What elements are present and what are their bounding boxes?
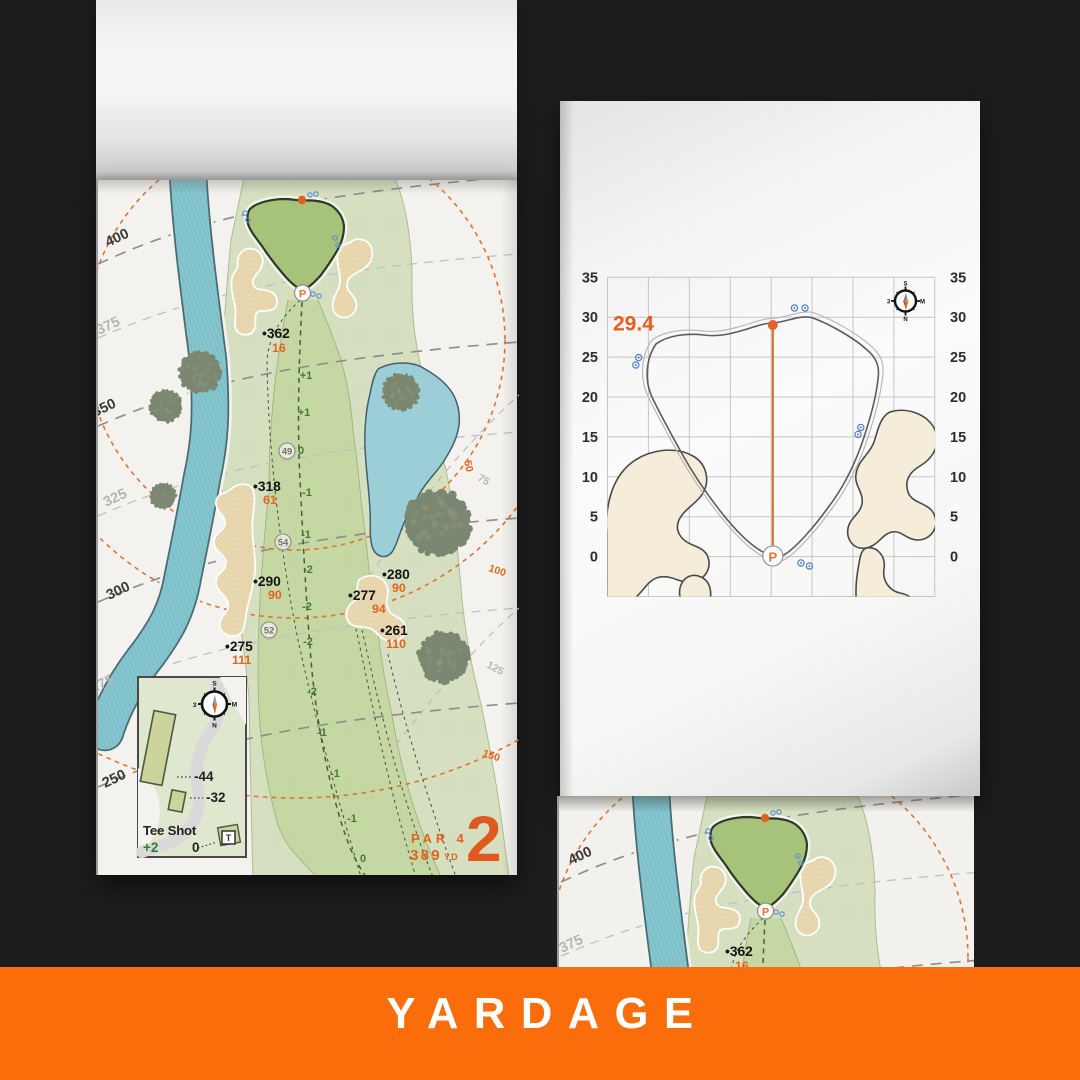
svg-text:110: 110 — [386, 637, 406, 651]
svg-text:30: 30 — [950, 310, 966, 326]
svg-text:325: 325 — [101, 486, 130, 511]
svg-text:-32: -32 — [206, 790, 226, 805]
svg-text:25: 25 — [582, 350, 598, 366]
svg-text:S: S — [903, 282, 907, 288]
svg-text:94: 94 — [372, 602, 386, 616]
svg-text:29.4: 29.4 — [613, 313, 654, 336]
svg-text:20: 20 — [582, 390, 598, 406]
svg-text:-2: -2 — [307, 686, 317, 698]
svg-text:N: N — [903, 317, 907, 323]
svg-text:+1: +1 — [300, 370, 313, 382]
svg-text:10: 10 — [950, 470, 966, 486]
svg-text:2: 2 — [466, 803, 502, 875]
svg-text:-2: -2 — [303, 636, 313, 648]
svg-text:-1: -1 — [347, 813, 357, 825]
svg-text:•290: •290 — [253, 574, 281, 589]
svg-text:35: 35 — [950, 270, 966, 286]
svg-text:PAR 4: PAR 4 — [411, 831, 468, 846]
svg-text:+1: +1 — [298, 407, 311, 419]
svg-text:T: T — [226, 833, 232, 843]
svg-text:111: 111 — [232, 653, 251, 667]
svg-text:15: 15 — [582, 430, 598, 446]
svg-text:54: 54 — [278, 538, 289, 549]
svg-text:•275: •275 — [225, 639, 253, 654]
svg-text:0: 0 — [298, 445, 304, 457]
svg-text:•362: •362 — [262, 326, 290, 341]
svg-text:5: 5 — [950, 510, 958, 526]
svg-text:•277: •277 — [348, 588, 376, 603]
svg-text:-1: -1 — [301, 529, 311, 541]
svg-text:30: 30 — [582, 310, 598, 326]
svg-text:15: 15 — [950, 430, 966, 446]
svg-text:M: M — [920, 300, 925, 306]
svg-text:M: M — [232, 702, 237, 709]
svg-text:0: 0 — [360, 853, 366, 865]
svg-text:-44: -44 — [194, 769, 214, 784]
svg-text:90: 90 — [392, 581, 406, 595]
svg-text:-2: -2 — [302, 601, 312, 613]
svg-text:0: 0 — [950, 550, 958, 566]
svg-text:•280: •280 — [382, 567, 410, 582]
svg-text:61: 61 — [263, 493, 277, 507]
svg-text:300: 300 — [104, 579, 133, 604]
svg-text:P: P — [768, 550, 777, 565]
svg-text:P: P — [299, 289, 306, 301]
svg-text:-1: -1 — [317, 727, 327, 739]
svg-text:400: 400 — [103, 226, 132, 251]
svg-text:3: 3 — [193, 702, 197, 709]
svg-text:20: 20 — [950, 390, 966, 406]
svg-text:-2: -2 — [303, 564, 313, 576]
svg-text:25: 25 — [950, 350, 966, 366]
svg-text:10: 10 — [582, 470, 598, 486]
svg-text:-1: -1 — [330, 768, 340, 780]
svg-text:+2: +2 — [143, 840, 158, 855]
svg-text:S: S — [212, 681, 217, 688]
svg-text:16: 16 — [272, 341, 286, 355]
svg-text:75: 75 — [476, 472, 492, 488]
svg-text:5: 5 — [590, 510, 598, 526]
svg-text:Tee Shot: Tee Shot — [143, 823, 197, 838]
svg-text:•318: •318 — [253, 479, 281, 494]
svg-text:50: 50 — [461, 459, 475, 473]
svg-text:350: 350 — [98, 396, 119, 421]
svg-text:35: 35 — [582, 270, 598, 286]
svg-text:49: 49 — [282, 447, 293, 458]
svg-text:•261: •261 — [380, 623, 408, 638]
svg-text:52: 52 — [264, 626, 275, 637]
svg-text:0: 0 — [590, 550, 598, 566]
svg-text:N: N — [212, 723, 217, 730]
svg-text:-1: -1 — [302, 487, 312, 499]
svg-text:3: 3 — [887, 300, 891, 306]
svg-text:375: 375 — [98, 314, 123, 339]
svg-text:90: 90 — [268, 588, 282, 602]
svg-text:250: 250 — [100, 767, 129, 792]
